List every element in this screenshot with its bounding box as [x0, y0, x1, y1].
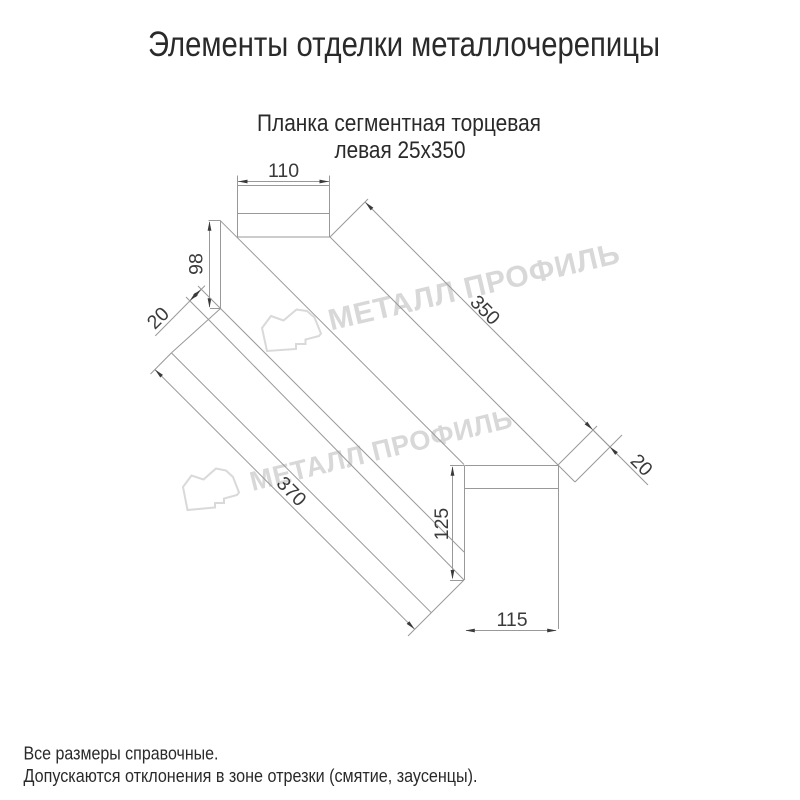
svg-text:Элементы отделки металлочерепи: Элементы отделки металлочерепицы: [148, 25, 660, 64]
svg-text:Допускаются отклонения в зоне: Допускаются отклонения в зоне отрезки (с…: [24, 766, 478, 786]
svg-text:левая 25х350: левая 25х350: [335, 137, 466, 164]
svg-text:Планка сегментная торцевая: Планка сегментная торцевая: [257, 110, 541, 137]
svg-text:110: 110: [268, 160, 299, 182]
svg-text:98: 98: [186, 253, 208, 275]
svg-text:Все размеры справочные.: Все размеры справочные.: [24, 744, 219, 764]
svg-text:125: 125: [431, 508, 453, 541]
svg-text:115: 115: [496, 609, 527, 631]
